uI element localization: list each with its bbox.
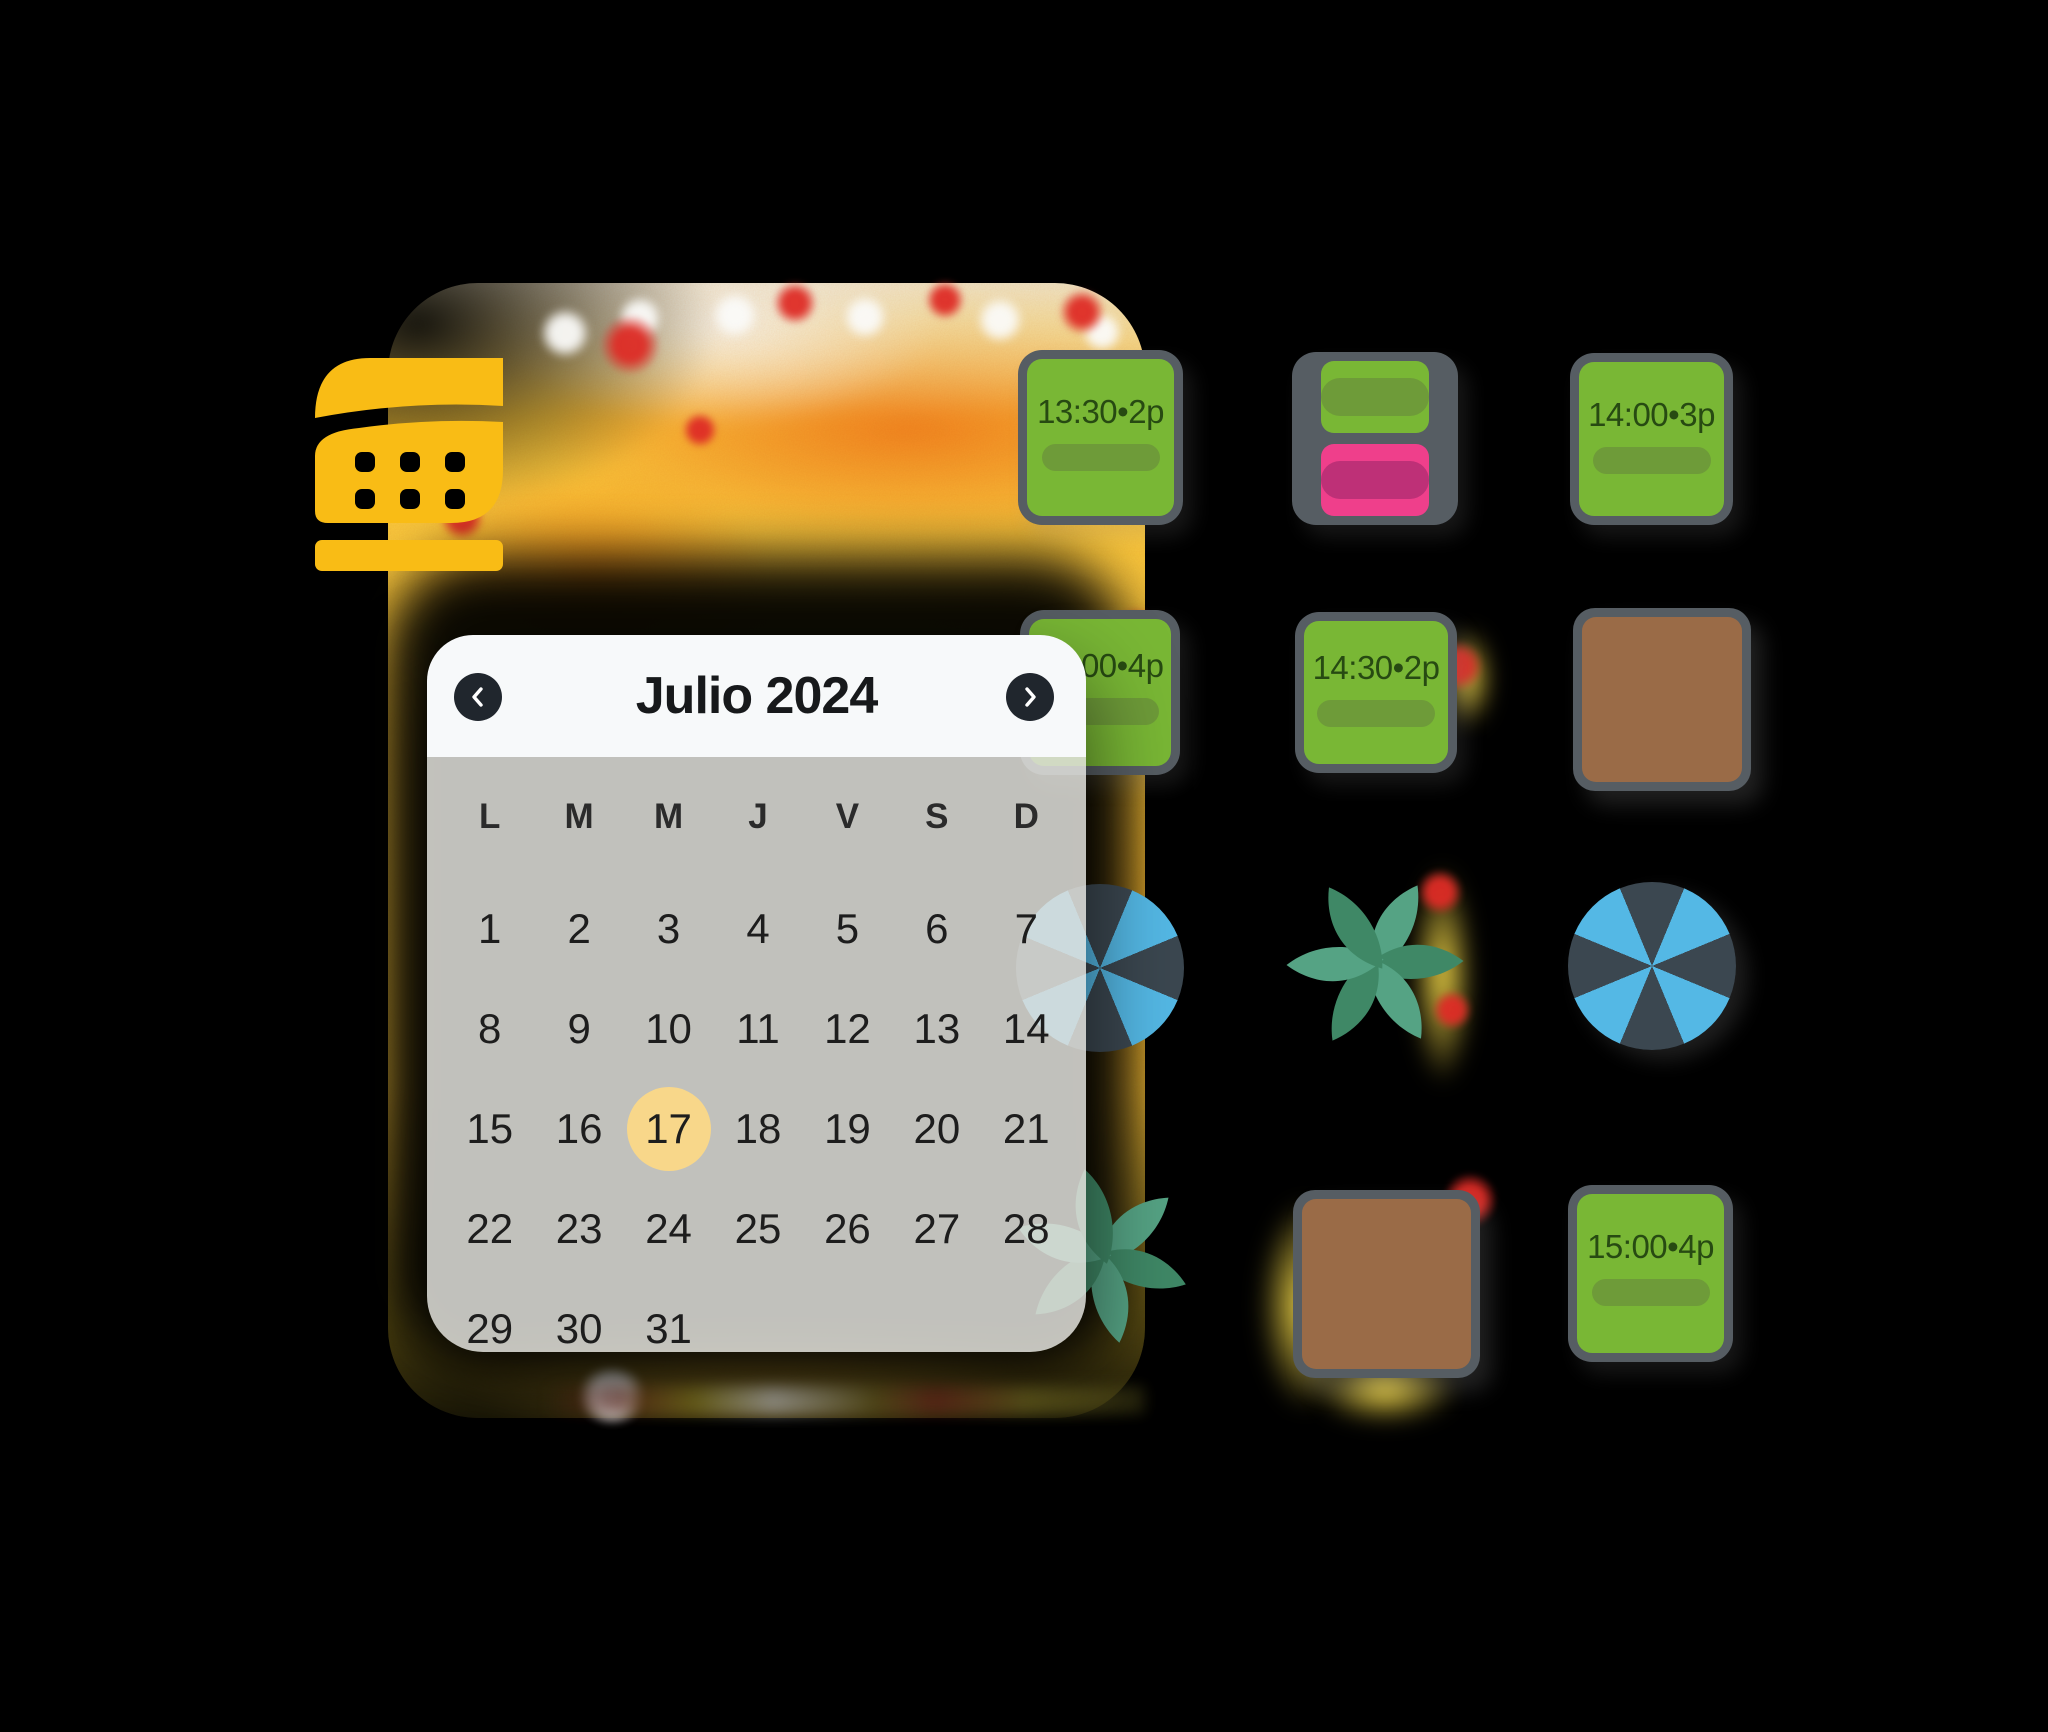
calendar-day-21[interactable]: 21 <box>982 1079 1071 1179</box>
speckle <box>843 295 887 339</box>
speckle <box>682 412 718 448</box>
umbrella-top-view-icon <box>1568 882 1736 1050</box>
date-picker-calendar: Julio 2024 L M M J V S D 1 2 3 4 5 6 7 <box>427 635 1086 1352</box>
calendar-day-29[interactable]: 29 <box>445 1279 534 1352</box>
calendar-month-title: Julio 2024 <box>427 635 1086 757</box>
reservation-slot-pink <box>1321 444 1429 516</box>
calendar-day-14[interactable]: 14 <box>982 979 1071 1079</box>
calendar-day-5[interactable]: 5 <box>803 879 892 979</box>
calendar-day-31[interactable]: 31 <box>624 1279 713 1352</box>
reservation-time-label: 14:30•2p <box>1313 649 1440 687</box>
table-brown <box>1293 1190 1480 1378</box>
speckle <box>712 292 758 338</box>
speckle <box>773 281 817 325</box>
reservation-pill <box>1593 447 1711 474</box>
calendar-day-23[interactable]: 23 <box>534 1179 623 1279</box>
calendar-day-2[interactable]: 2 <box>534 879 623 979</box>
next-month-button[interactable] <box>1006 673 1054 721</box>
calendar-body: L M M J V S D 1 2 3 4 5 6 7 8 9 10 11 12… <box>427 757 1086 1352</box>
speckle <box>1059 289 1105 335</box>
weekday-header: D <box>982 779 1071 855</box>
calendar-day-8[interactable]: 8 <box>445 979 534 1079</box>
calendar-day-13[interactable]: 13 <box>892 979 981 1079</box>
calendar-day-empty <box>713 1279 802 1352</box>
calendar-day-17-selected[interactable]: 17 <box>624 1079 713 1179</box>
calendar-day-9[interactable]: 9 <box>534 979 623 1079</box>
plant-top-view-icon <box>1271 859 1479 1067</box>
reservation-slot-green <box>1321 361 1429 433</box>
reservation-pill <box>1592 1279 1710 1306</box>
covermanager-logo <box>315 358 505 575</box>
calendar-day-26[interactable]: 26 <box>803 1179 892 1279</box>
weekday-header: J <box>713 779 802 855</box>
reservation-time-label: 14:00•3p <box>1588 396 1715 434</box>
reservation-pill <box>1317 700 1435 727</box>
calendar-day-16[interactable]: 16 <box>534 1079 623 1179</box>
calendar-day-10[interactable]: 10 <box>624 979 713 1079</box>
calendar-day-empty <box>982 1279 1071 1352</box>
reservation-card-1330[interactable]: 13:30•2p <box>1018 350 1183 525</box>
calendar-day-27[interactable]: 27 <box>892 1179 981 1279</box>
weekday-header: M <box>624 779 713 855</box>
speckle <box>540 308 590 358</box>
chevron-right-icon <box>1018 685 1042 709</box>
weekday-header: S <box>892 779 981 855</box>
reservation-card-1400-3p[interactable]: 14:00•3p <box>1570 353 1733 525</box>
calendar-day-28[interactable]: 28 <box>982 1179 1071 1279</box>
calendar-day-1[interactable]: 1 <box>445 879 534 979</box>
calendar-day-30[interactable]: 30 <box>534 1279 623 1352</box>
calendar-day-20[interactable]: 20 <box>892 1079 981 1179</box>
speckle <box>600 315 660 375</box>
calendar-day-7[interactable]: 7 <box>982 879 1071 979</box>
calendar-day-empty <box>892 1279 981 1352</box>
calendar-day-6[interactable]: 6 <box>892 879 981 979</box>
calendar-day-12[interactable]: 12 <box>803 979 892 1079</box>
reservation-time-label: 13:30•2p <box>1037 393 1164 431</box>
calendar-day-25[interactable]: 25 <box>713 1179 802 1279</box>
calendar-grid: L M M J V S D 1 2 3 4 5 6 7 8 9 10 11 12… <box>445 779 1071 1352</box>
speckle <box>925 280 965 320</box>
table-brown <box>1573 608 1751 791</box>
calendar-day-3[interactable]: 3 <box>624 879 713 979</box>
weekday-header: V <box>803 779 892 855</box>
calendar-day-22[interactable]: 22 <box>445 1179 534 1279</box>
reservation-card-1430-2p[interactable]: 14:30•2p <box>1295 612 1457 773</box>
calendar-day-24[interactable]: 24 <box>624 1179 713 1279</box>
calendar-day-11[interactable]: 11 <box>713 979 802 1079</box>
reservation-time-label: 15:00•4p <box>1587 1228 1714 1266</box>
calendar-day-15[interactable]: 15 <box>445 1079 534 1179</box>
illustration-canvas: 13:30•2p 14:00•3p 14:00•4p 14:30•2p 15:0… <box>0 0 2048 1732</box>
weekday-header: M <box>534 779 623 855</box>
calendar-day-4[interactable]: 4 <box>713 879 802 979</box>
speckle <box>977 297 1023 343</box>
reservation-pill <box>1321 461 1429 499</box>
weekday-header: L <box>445 779 534 855</box>
calendar-day-18[interactable]: 18 <box>713 1079 802 1179</box>
reservation-card-1500-4p[interactable]: 15:00•4p <box>1568 1185 1733 1362</box>
reservation-pill <box>1321 378 1429 416</box>
reservation-pill <box>1042 444 1160 471</box>
blurred-floor-strip <box>545 1386 1145 1414</box>
calendar-day-empty <box>803 1279 892 1352</box>
calendar-day-19[interactable]: 19 <box>803 1079 892 1179</box>
reservation-card-split[interactable] <box>1292 352 1458 525</box>
